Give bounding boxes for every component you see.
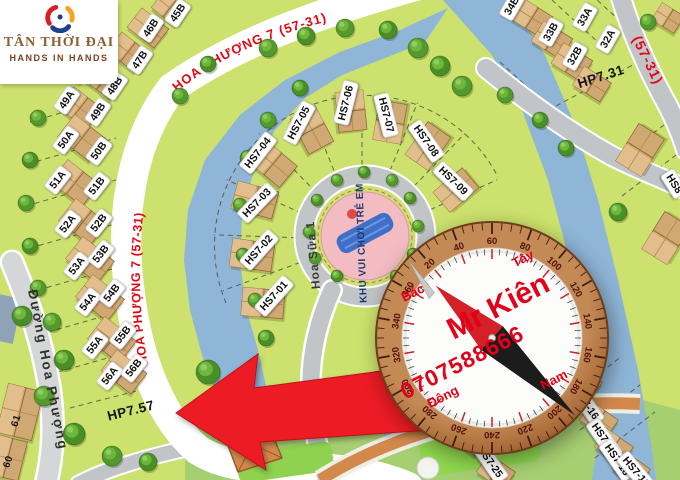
brand-title: TÂN THỜI ĐẠI xyxy=(0,35,118,51)
playground-slide xyxy=(347,209,357,219)
compass-degree-240: 240 xyxy=(484,429,500,440)
compass: 2040608010012014016018020022024026028030… xyxy=(367,213,617,463)
real-estate-map: HOA PHƯỢNG 7 (57-31) HOA PHƯỢNG 7 (57-31… xyxy=(0,0,680,480)
house xyxy=(332,90,367,135)
brand-subtitle: HANDS IN HANDS xyxy=(0,53,118,63)
compass-degree-60: 60 xyxy=(487,236,498,247)
house xyxy=(241,287,288,322)
brand-logo: TÂN THỜI ĐẠI HANDS IN HANDS xyxy=(0,0,118,84)
hands-logo-icon xyxy=(42,3,76,33)
